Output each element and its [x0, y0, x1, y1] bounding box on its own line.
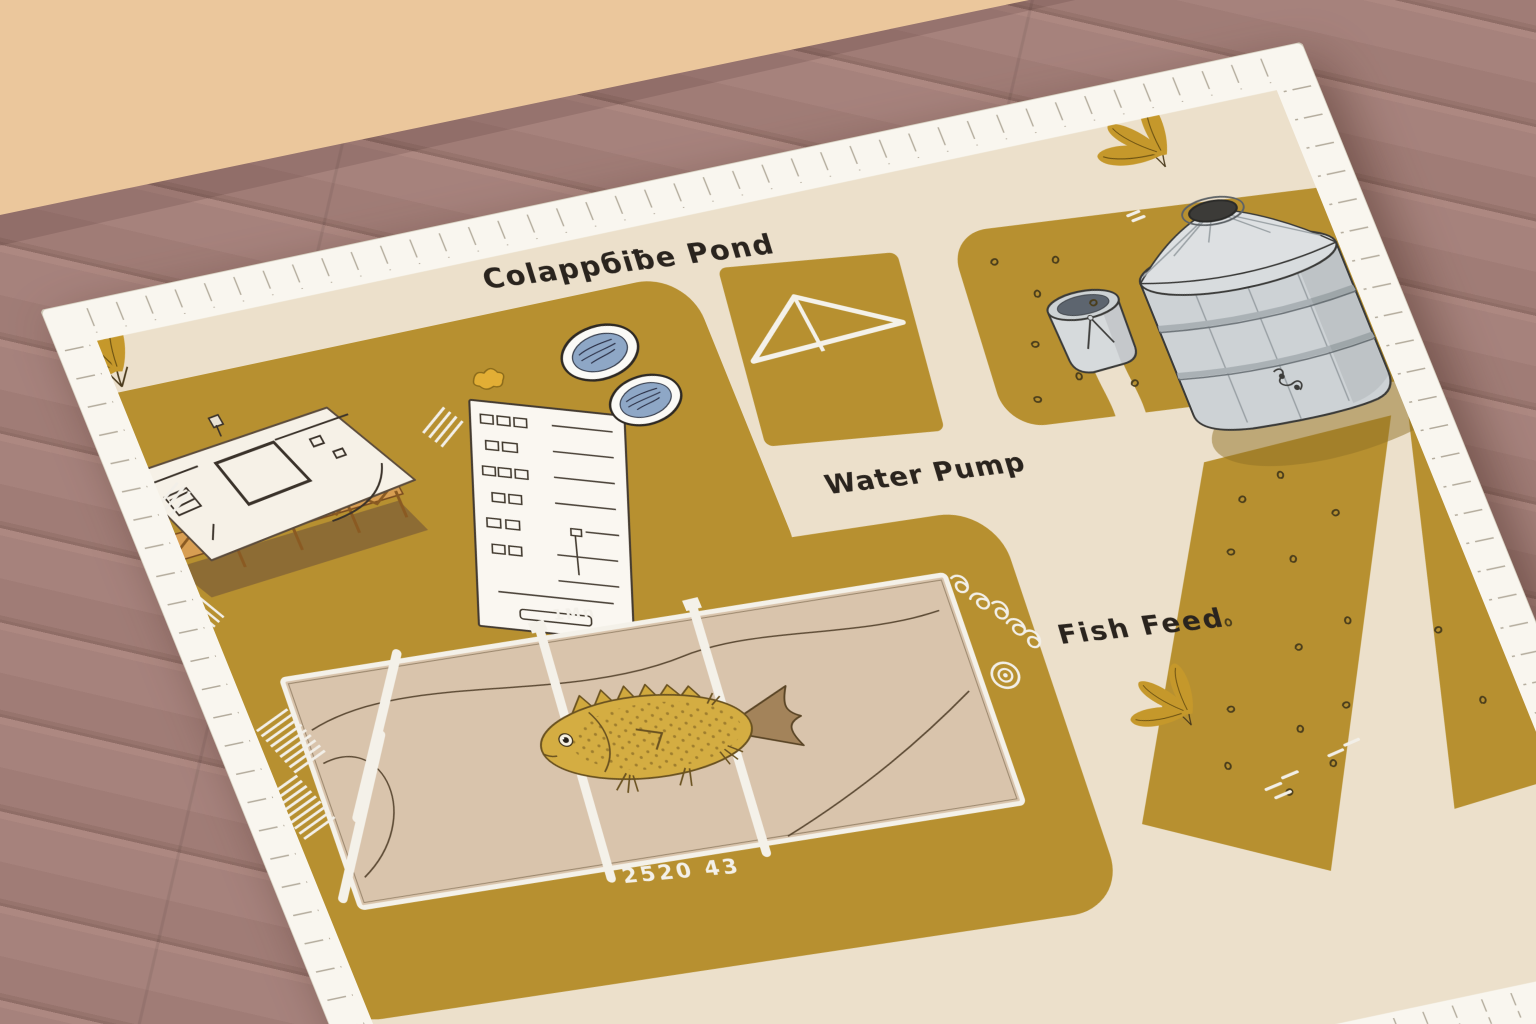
scene: Colappбiƀe Pond Water Pump Fish Feed	[0, 0, 1536, 1024]
pond-length-note: 1Mn	[551, 603, 598, 623]
